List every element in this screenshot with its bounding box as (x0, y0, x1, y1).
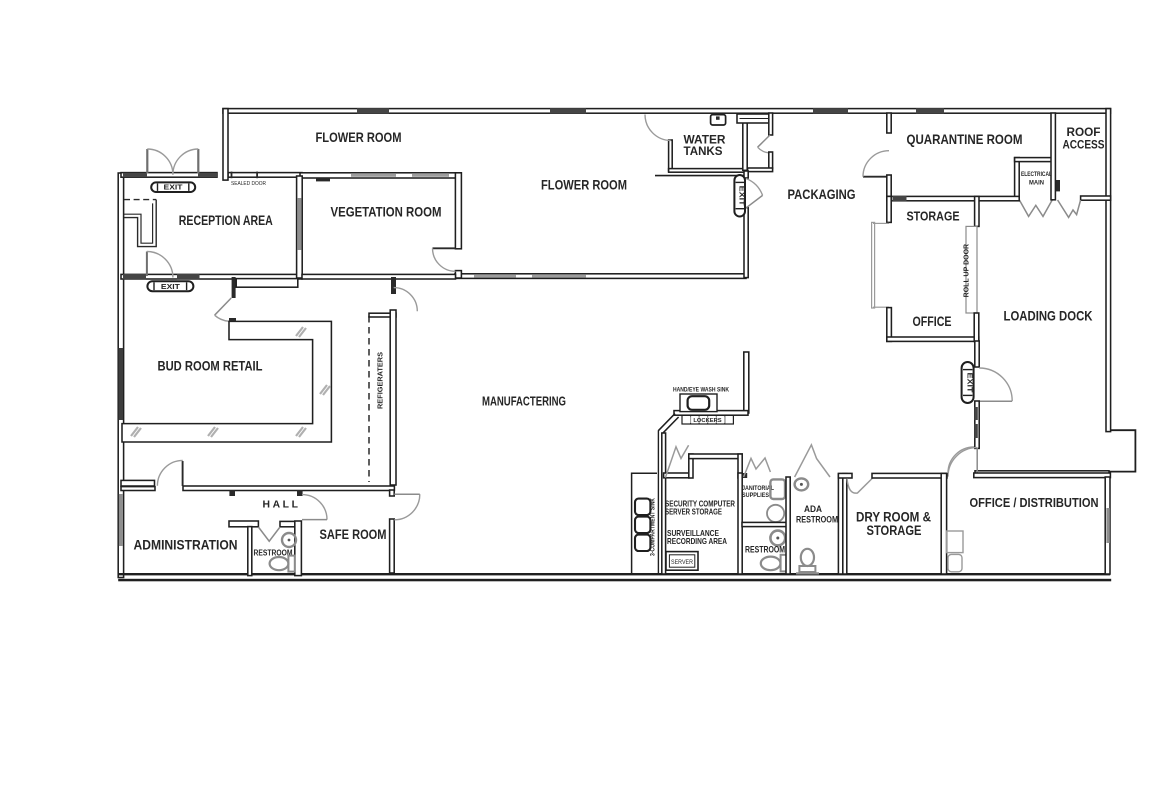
svg-text:STORAGE: STORAGE (907, 209, 960, 224)
svg-text:RESTROOM: RESTROOM (796, 515, 838, 525)
svg-text:STORAGE: STORAGE (867, 523, 922, 538)
svg-text:LOADING DOCK: LOADING DOCK (1004, 308, 1093, 323)
svg-text:QUARANTINE ROOM: QUARANTINE ROOM (907, 132, 1023, 147)
svg-text:MANUFACTERING: MANUFACTERING (482, 394, 566, 409)
svg-text:ADMINISTRATION: ADMINISTRATION (134, 538, 238, 553)
svg-text:RECORDING AREA: RECORDING AREA (667, 537, 727, 546)
svg-text:SAFE ROOM: SAFE ROOM (320, 527, 387, 542)
svg-text:OFFICE: OFFICE (913, 314, 952, 329)
svg-text:SUPPLIES: SUPPLIES (742, 492, 769, 499)
svg-text:PACKAGING: PACKAGING (788, 187, 856, 202)
svg-text:SERVER STORAGE: SERVER STORAGE (665, 508, 722, 517)
svg-text:HALL: HALL (263, 500, 301, 511)
svg-text:LOCKERS: LOCKERS (693, 418, 721, 424)
svg-text:OFFICE / DISTRIBUTION: OFFICE / DISTRIBUTION (970, 495, 1099, 510)
svg-text:SEALED DOOR: SEALED DOOR (231, 181, 266, 187)
svg-text:TANKS: TANKS (684, 144, 723, 158)
svg-text:ACCESS: ACCESS (1063, 137, 1105, 151)
svg-text:REFIGERATERS: REFIGERATERS (376, 352, 385, 409)
svg-text:VEGETATION ROOM: VEGETATION ROOM (331, 205, 442, 220)
svg-text:FLOWER ROOM: FLOWER ROOM (541, 178, 627, 193)
svg-text:FLOWER ROOM: FLOWER ROOM (316, 130, 402, 145)
svg-text:MAIN: MAIN (1029, 179, 1044, 186)
svg-text:ELECTRICAL: ELECTRICAL (1021, 171, 1052, 178)
svg-text:ADA: ADA (804, 504, 823, 514)
svg-text:EXIT: EXIT (966, 373, 975, 394)
svg-text:BUD ROOM RETAIL: BUD ROOM RETAIL (158, 358, 263, 373)
svg-text:RECEPTION AREA: RECEPTION AREA (179, 213, 273, 228)
svg-text:ROLL UP DOOR: ROLL UP DOOR (963, 244, 970, 297)
svg-text:3-COMPARTMENT SINK: 3-COMPARTMENT SINK (649, 498, 656, 556)
svg-text:RESTROOM: RESTROOM (745, 544, 785, 554)
svg-text:EXIT: EXIT (161, 282, 181, 291)
svg-text:SERVER: SERVER (671, 560, 694, 566)
svg-text:RESTROOM: RESTROOM (254, 547, 293, 557)
svg-text:EXIT: EXIT (164, 183, 184, 192)
svg-text:EXIT: EXIT (738, 186, 747, 207)
svg-text:HAND/EYE WASH SINK: HAND/EYE WASH SINK (673, 386, 729, 393)
